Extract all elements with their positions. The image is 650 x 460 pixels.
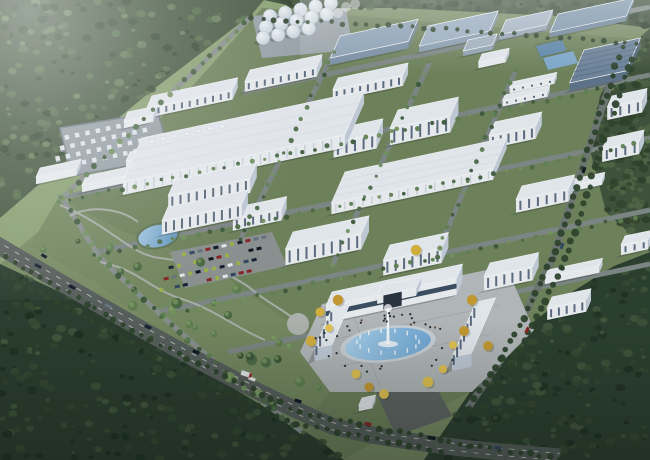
aerial-render-viewport (0, 0, 650, 460)
industrial-park-aerial-scene (0, 0, 650, 460)
atmosphere (0, 0, 650, 460)
dusk-tint (0, 0, 650, 460)
